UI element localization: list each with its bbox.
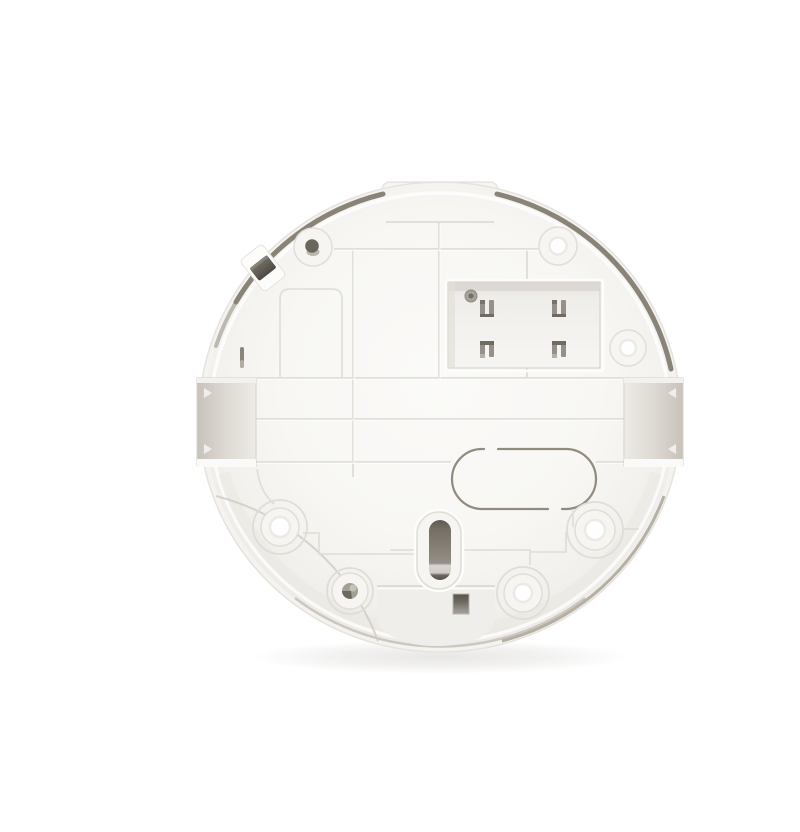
backplate-illustration — [40, 16, 800, 816]
battery-compartment — [446, 280, 603, 371]
boss-top-right — [539, 227, 577, 265]
pocket-bottom-wall — [624, 459, 683, 467]
compartment-left-shadow — [448, 282, 455, 368]
recess-floor — [377, 586, 495, 646]
keyhole-slot — [415, 510, 463, 591]
pocket-top-wall — [624, 378, 683, 383]
product-photo — [40, 16, 800, 816]
compartment-screw — [465, 290, 477, 302]
boss-bottom-left-screw — [327, 568, 373, 614]
keyhole-opening — [429, 520, 451, 580]
side-pocket-left — [197, 378, 256, 467]
square-hole — [453, 594, 469, 614]
boss-bottom-right — [497, 567, 549, 619]
boss-lower-left — [253, 500, 307, 554]
boss-top-left — [294, 228, 332, 266]
pocket-top-wall — [197, 378, 256, 383]
side-slot — [240, 347, 244, 368]
side-pocket-right — [624, 378, 683, 467]
boss-lower-right — [567, 502, 623, 558]
boss-right-mid — [610, 330, 646, 366]
pocket-bottom-wall — [197, 459, 256, 467]
bottom-recess — [377, 586, 495, 646]
